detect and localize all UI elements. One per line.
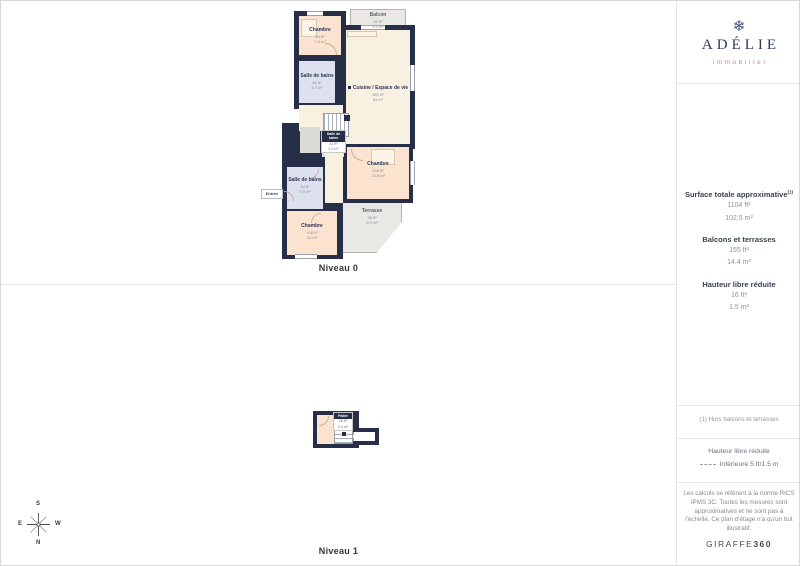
stair-landing-marker <box>342 432 346 436</box>
compass-letter-bottom: N <box>36 540 40 546</box>
room-badge-palier: Palier 25 ft² 2.4 m² <box>333 412 353 431</box>
room-reduced-height <box>353 432 375 441</box>
room-badge-entree: Entrée <box>261 189 283 199</box>
window <box>295 254 317 259</box>
footnote-marker: (1) <box>788 190 794 195</box>
dashed-line-icon <box>700 464 716 465</box>
floorplan-page: Balcon 59 ft² 5.5 m² Chambre 84 ft² 7.8 … <box>0 0 800 566</box>
metric-label: Balcons et terrasses <box>677 234 800 245</box>
metric-label: Hauteur libre réduite <box>677 279 800 290</box>
window <box>361 25 385 30</box>
level-1-label: Niveau 1 <box>1 546 676 556</box>
room-sdb-top <box>299 61 335 103</box>
footnote-text: (1) Hors balcons et terrasses <box>677 416 800 423</box>
metric-value: 1104 ft² <box>677 200 800 212</box>
compass-letter-top: S <box>36 501 40 507</box>
terrasse-area <box>342 201 402 253</box>
brand-logo-tagline: immobilier <box>677 59 800 66</box>
window <box>410 161 415 185</box>
bed <box>301 19 317 37</box>
window <box>307 11 323 16</box>
room-dressing <box>300 127 320 153</box>
room-corridor <box>325 153 343 203</box>
metric-value: 16 ft² <box>677 290 800 302</box>
sidebar: ❄ ADÉLIE immobilier Surface totale appro… <box>677 1 800 566</box>
kitchen-counter <box>347 31 377 37</box>
window <box>410 65 415 91</box>
compass-letter-left: E <box>18 521 22 527</box>
metric-value: 1.5 m² <box>677 302 800 314</box>
metric-label: Surface totale approximative(1) <box>677 189 800 200</box>
legend-row: Inférieure 5 ft/1.5 m <box>677 461 800 468</box>
sidebar-section-divider <box>677 83 800 84</box>
bed <box>371 149 395 165</box>
giraffe360-brand: GIRAFFE360 <box>677 539 800 549</box>
section-divider <box>1 284 677 285</box>
sidebar-section-divider <box>677 482 800 483</box>
brand-logo-name: ADÉLIE <box>677 37 800 54</box>
metric-value: 102,5 m² <box>677 213 800 225</box>
legend-title: Hauteur libre réduite <box>677 448 800 455</box>
stair-landing-marker <box>344 115 350 121</box>
metric-value: 155 ft² <box>677 245 800 257</box>
surface-metrics: Surface totale approximative(1) 1104 ft²… <box>677 180 800 314</box>
compass-letter-right: W <box>55 521 61 527</box>
level-0-label: Niveau 0 <box>1 263 676 273</box>
metric-value: 14.4 m² <box>677 257 800 269</box>
snowflake-icon: ❄ <box>677 17 800 35</box>
sidebar-section-divider <box>677 438 800 439</box>
disclaimer-text: Les calculs se réfèrent à la norme RICS … <box>683 490 795 534</box>
sidebar-section-divider <box>677 405 800 406</box>
room-cuisine <box>346 30 410 144</box>
compass-star-icon <box>25 511 52 538</box>
room-badge-sdb-small: Salle de bains 31 ft² 2.9 m² <box>321 130 346 153</box>
